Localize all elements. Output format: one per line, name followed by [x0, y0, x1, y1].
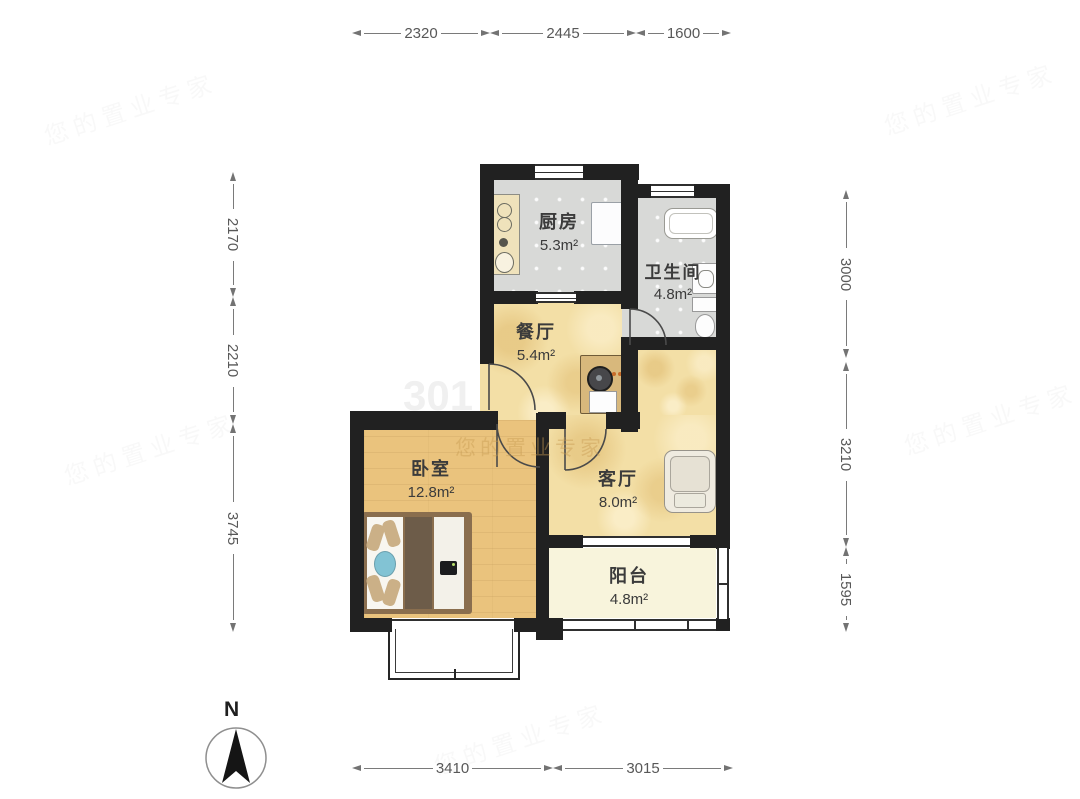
wall-segment [621, 337, 730, 350]
dim-right-1: 3000 [838, 190, 854, 358]
wall-segment [716, 618, 730, 631]
dim-value: 3410 [436, 760, 469, 777]
dim-value: 3745 [225, 511, 242, 544]
bay-window [388, 629, 520, 680]
room-area: 12.8m² [408, 484, 455, 501]
room-area: 5.4m² [516, 347, 556, 364]
wall-segment [716, 184, 730, 549]
bed-panel-icon [440, 561, 457, 575]
dim-left-2: 2210 [225, 297, 241, 424]
dim-value: 3210 [838, 438, 855, 471]
watermark-ghost: 您的置业专家 [899, 373, 1080, 462]
wall-segment [621, 164, 638, 309]
compass-icon [201, 722, 271, 792]
indicator-dot [452, 563, 455, 566]
bathtub [664, 208, 718, 239]
wall-segment [549, 618, 563, 631]
wall-segment [536, 413, 549, 632]
dim-right-3: 1595 [838, 547, 854, 632]
dim-left-3: 3745 [225, 424, 241, 632]
watermark-ghost: 您的置业专家 [59, 403, 241, 492]
room-label-kitchen: 厨房 5.3m² [539, 208, 579, 254]
room-name: 餐厅 [516, 318, 556, 344]
watermark-ghost: 您的置业专家 [879, 53, 1061, 142]
window-mullion [719, 583, 727, 585]
armchair-back [670, 456, 710, 492]
dim-value: 1595 [838, 573, 855, 606]
armchair [664, 450, 716, 513]
faucet-icon [499, 238, 508, 247]
dim-top-2: 2445 [490, 25, 636, 41]
dim-left-1: 2170 [225, 172, 241, 297]
wall-segment [480, 164, 494, 364]
wall-segment [350, 618, 392, 632]
living-floor-upper [638, 350, 716, 416]
wall-segment [549, 535, 583, 548]
room-name: 厨房 [539, 208, 579, 234]
dim-right-2: 3210 [838, 362, 854, 547]
bathroom-window [651, 184, 694, 198]
room-area: 4.8m² [645, 286, 702, 303]
fridge [591, 202, 624, 245]
wall-segment [606, 412, 640, 429]
bed-duvet-dark [405, 517, 432, 609]
sink-icon [495, 252, 514, 273]
dim-value: 2320 [404, 25, 437, 42]
bay-window-inner-frame [395, 629, 513, 673]
room-name: 阳台 [609, 562, 649, 588]
dim-value: 3015 [626, 760, 659, 777]
wall-segment [350, 411, 364, 632]
room-label-bathroom: 卫生间 4.8m² [645, 258, 702, 303]
bed-round-cushion [374, 551, 396, 577]
room-label-dining: 餐厅 5.4m² [516, 318, 556, 364]
bathtub-inner [669, 213, 713, 234]
balcony-window-bottom [563, 619, 716, 631]
toilet-bowl [695, 314, 715, 338]
towel-icon [589, 391, 617, 413]
watermark-ghost: 您的置业专家 [39, 63, 221, 152]
wall-segment [350, 411, 498, 430]
room-label-living: 客厅 8.0m² [598, 465, 638, 511]
kitchen-window [535, 164, 583, 180]
floor-plan-canvas: 厨房 5.3m² 卫生间 4.8m² 餐厅 5.4m² 卧室 12.8m² 客厅… [0, 0, 1080, 799]
washbasin-icon [587, 366, 613, 392]
dim-bottom-2: 3015 [553, 760, 733, 776]
room-label-balcony: 阳台 4.8m² [609, 562, 649, 608]
dim-value: 3000 [838, 257, 855, 290]
balcony-window-right [717, 548, 729, 619]
compass-north-label: N [224, 698, 239, 722]
dim-value: 1600 [667, 25, 700, 42]
room-area: 4.8m² [609, 591, 649, 608]
wall-segment [690, 535, 730, 548]
stove-burner-icon [497, 217, 512, 232]
dim-value: 2170 [225, 218, 242, 251]
stove-burner-icon [497, 203, 512, 218]
dim-top-3: 1600 [636, 25, 731, 41]
balcony-doorway-sill [582, 536, 692, 547]
drain-icon [596, 375, 602, 381]
wall-segment [480, 291, 538, 304]
armchair-seat [674, 493, 706, 508]
room-area: 8.0m² [598, 494, 638, 511]
dim-bottom-1: 3410 [352, 760, 553, 776]
window-mullion [687, 621, 689, 629]
window-mullion [634, 621, 636, 629]
room-name: 客厅 [598, 465, 638, 491]
knob-icon [612, 372, 616, 376]
dim-value: 2210 [225, 344, 242, 377]
dining-cabinet [580, 355, 623, 414]
bed [362, 512, 472, 614]
room-name: 卫生间 [645, 258, 702, 283]
room-area: 5.3m² [539, 237, 579, 254]
dim-value: 2445 [546, 25, 579, 42]
room-label-bedroom: 卧室 12.8m² [408, 455, 455, 501]
dim-top-1: 2320 [352, 25, 490, 41]
wall-segment [574, 291, 638, 304]
room-name: 卧室 [408, 455, 455, 481]
bay-window-mullion [454, 669, 456, 678]
kitchen-pass-window [536, 292, 576, 303]
